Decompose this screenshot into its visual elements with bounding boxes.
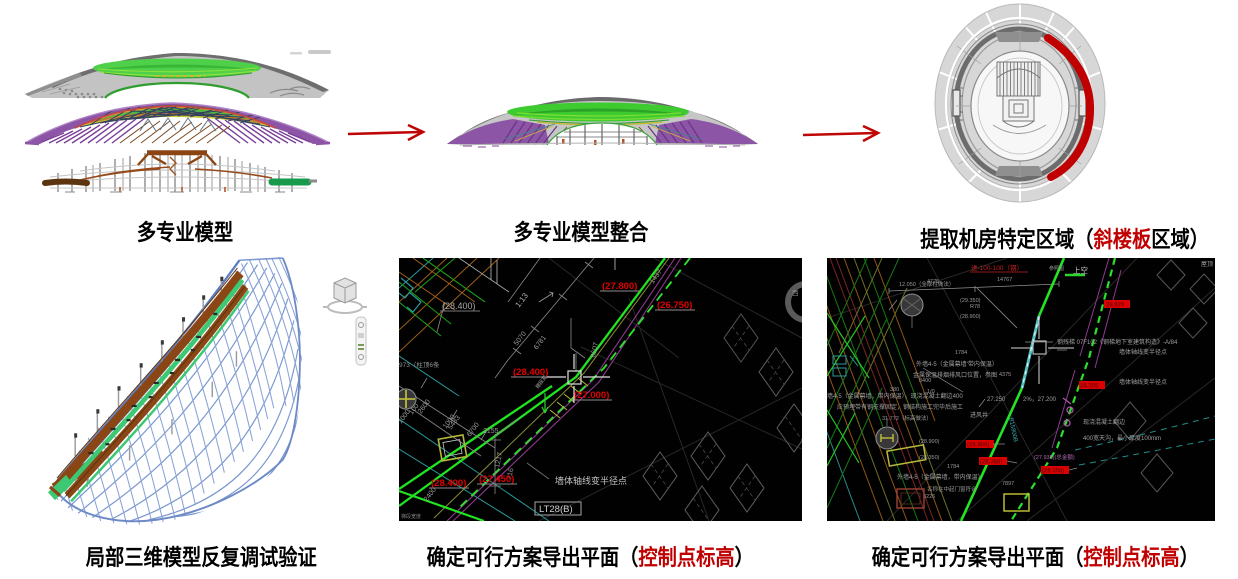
svg-text:墙体轴线变半径点: 墙体轴线变半径点	[1119, 348, 1167, 356]
svg-text:外墙4-5（金属幕墙，带内保温）: 外墙4-5（金属幕墙，带内保温）	[897, 473, 984, 481]
svg-text:进-100-100（钢）: 进-100-100（钢）	[971, 264, 1023, 272]
svg-text:(27.935)(总金额): (27.935)(总金额)	[1034, 453, 1075, 461]
svg-text:2155: 2155	[483, 428, 499, 435]
svg-text:屋顶: 屋顶	[1201, 261, 1213, 268]
svg-text:(27.800): (27.800)	[602, 281, 637, 292]
svg-text:27.250: 27.250	[987, 397, 1006, 403]
svg-text:西: 西	[792, 289, 799, 297]
svg-text:参照图: 参照图	[1049, 265, 1064, 272]
svg-text:(28.400): (28.400)	[442, 301, 476, 311]
svg-text:(28.350): (28.350)	[919, 455, 940, 461]
svg-text:28.870: 28.870	[1106, 303, 1125, 309]
svg-text:973（柱顶6条: 973（柱顶6条	[399, 360, 440, 369]
svg-text:上空: 上空	[1073, 265, 1088, 275]
svg-text:7897: 7897	[1002, 481, 1014, 487]
svg-text:4375: 4375	[999, 372, 1011, 378]
svg-text:现浇混凝土翻边: 现浇混凝土翻边	[1083, 418, 1125, 426]
svg-text:钢残梯 07F102《钢梯地下室建筑构造》-A/84: 钢残梯 07F102《钢梯地下室建筑构造》-A/84	[1057, 338, 1178, 346]
svg-text:墙体轴线变半径点: 墙体轴线变半径点	[1119, 378, 1167, 386]
svg-text:(28.350): (28.350)	[1042, 469, 1064, 475]
svg-text:(28.900): (28.900)	[919, 439, 940, 445]
svg-text:28.305: 28.305	[1080, 384, 1099, 390]
svg-text:(29.350): (29.350)	[960, 298, 981, 304]
svg-text:名称在中起门窗符合: 名称在中起门窗符合	[927, 485, 977, 493]
svg-text:380: 380	[890, 387, 899, 393]
svg-text:12.050（全厚柱做法）: 12.050（全厚柱做法）	[899, 280, 954, 288]
svg-text:梯段宽度: 梯段宽度	[401, 513, 421, 520]
svg-text:LT28(B): LT28(B)	[539, 504, 573, 515]
svg-text:(28.900): (28.900)	[967, 443, 989, 449]
svg-text:应预埋带有钢支撑固定，钢结构施工完毕后施工: 应预埋带有钢支撑固定，钢结构施工完毕后施工	[837, 403, 963, 411]
svg-text:1784: 1784	[955, 350, 967, 356]
svg-text:墙4-5（金属幕墙，带内保温），现浇混凝土翻边400: 墙4-5（金属幕墙，带内保温），现浇混凝土翻边400	[827, 392, 963, 400]
svg-text:(26.750): (26.750)	[657, 300, 692, 311]
svg-text:(27.000): (27.000)	[574, 390, 609, 401]
svg-text:31.772（标高做法）: 31.772（标高做法）	[882, 414, 932, 422]
svg-text:外墙4-5（金属幕墙'带内保温）: 外墙4-5（金属幕墙'带内保温）	[916, 360, 998, 368]
svg-text:1784: 1784	[947, 464, 959, 470]
svg-text:(27.450): (27.450)	[479, 474, 514, 485]
svg-text:3226: 3226	[923, 494, 935, 500]
svg-text:(28.900): (28.900)	[960, 314, 981, 320]
svg-text:金属保温排烟排风口位置，参图: 金属保温排烟排风口位置，参图	[913, 371, 997, 379]
svg-text:墙体轴线变半径点: 墙体轴线变半径点	[555, 475, 627, 486]
svg-text:(28.400): (28.400)	[431, 478, 466, 489]
svg-text:(28.350): (28.350)	[980, 460, 1002, 466]
svg-text:R78: R78	[970, 304, 980, 310]
svg-text:14767: 14767	[997, 277, 1012, 283]
svg-text:2%，27.200: 2%，27.200	[1023, 397, 1057, 403]
svg-text:400宽天沟，最小厚度100mm: 400宽天沟，最小厚度100mm	[1083, 434, 1161, 442]
svg-text:进风井: 进风井	[970, 411, 988, 419]
